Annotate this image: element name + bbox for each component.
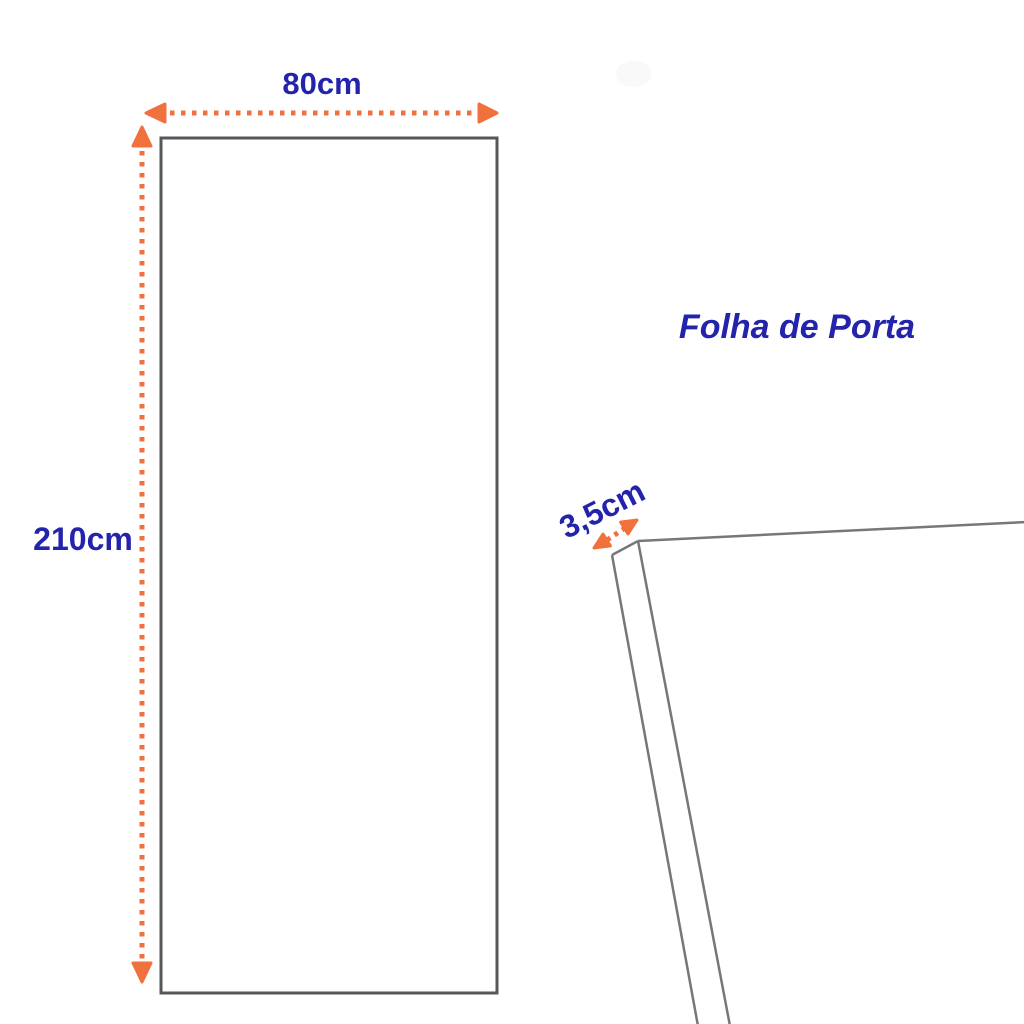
- door-front-outline: [161, 138, 497, 993]
- door-edge-top-line: [638, 522, 1024, 541]
- arrow-up-icon: [133, 127, 151, 146]
- door-edge-corner-line: [612, 541, 638, 555]
- arrow-down-left-icon: [594, 534, 610, 548]
- arrow-left-icon: [146, 104, 165, 122]
- height-dimension-label: 210cm: [3, 521, 163, 557]
- diagram-linework: [0, 0, 1024, 1024]
- thickness-dim-dotted-line: [607, 528, 625, 540]
- diagram-title: Folha de Porta: [647, 306, 947, 348]
- arrow-right-icon: [479, 104, 497, 122]
- arrow-down-icon: [133, 963, 151, 982]
- arrow-up-right-icon: [621, 520, 637, 534]
- watermark-smudge: [616, 61, 652, 87]
- door-edge-view: [612, 522, 1024, 1024]
- width-dimension-arrow: [146, 104, 497, 122]
- width-dimension-label: 80cm: [242, 66, 402, 102]
- door-dimension-diagram: 80cm 210cm 3,5cm Folha de Porta: [0, 0, 1024, 1024]
